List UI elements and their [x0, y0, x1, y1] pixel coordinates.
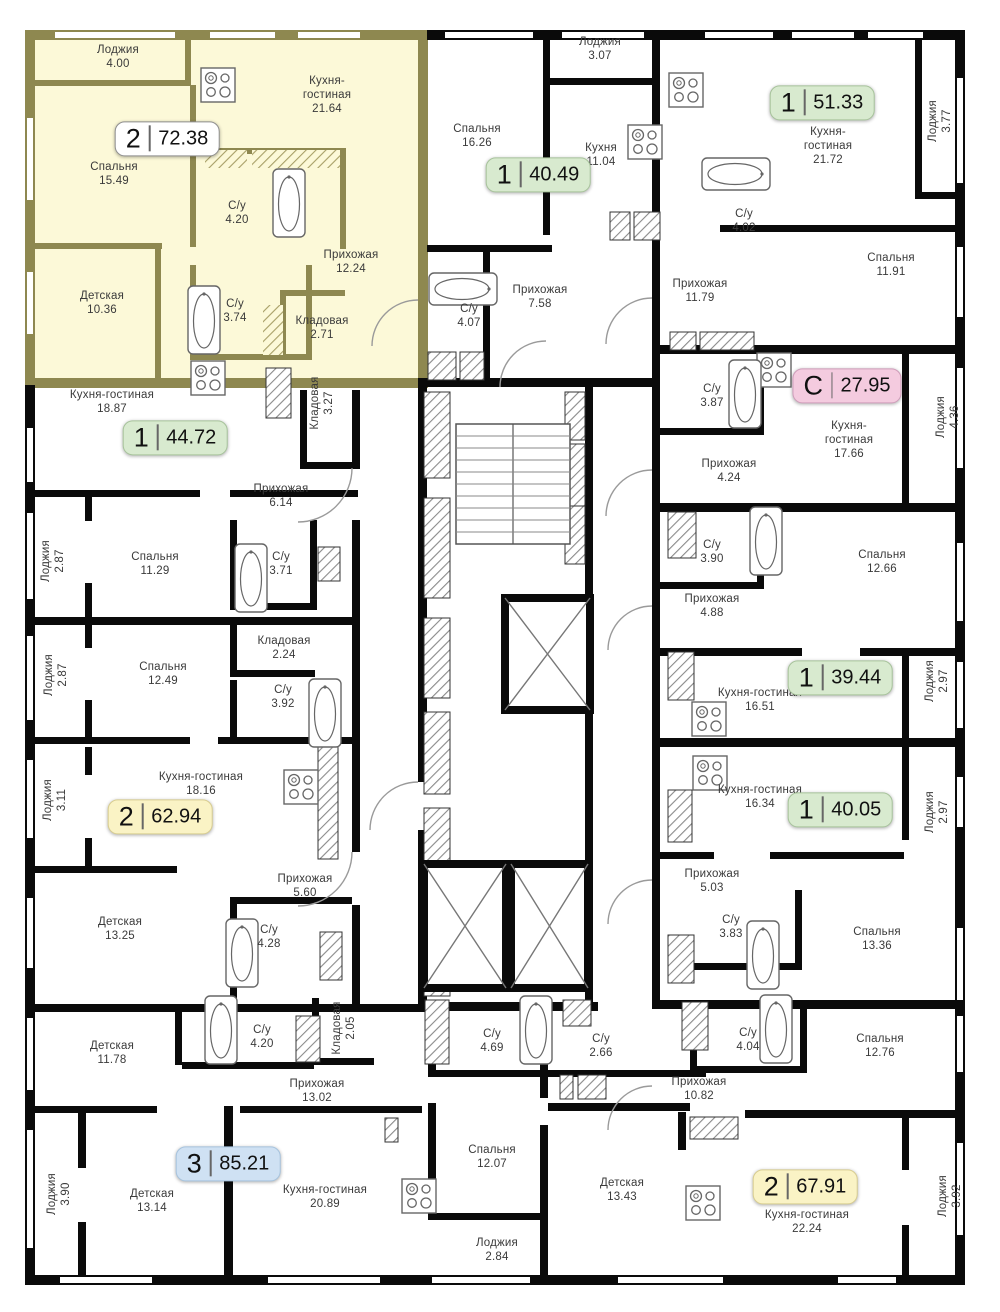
room-name: Кухня-гостиная: [240, 1183, 410, 1197]
room-name: Кладовая: [295, 314, 348, 328]
room-name: С/у: [257, 923, 280, 937]
room-label: Кухня-гостиная18.87: [37, 388, 187, 416]
room-area: 13.43: [600, 1190, 644, 1204]
room-label: Спальня12.76: [856, 1032, 904, 1060]
room-area: 3.92: [271, 697, 294, 711]
room-area: 16.26: [453, 136, 501, 150]
room-area: 12.24: [324, 262, 379, 276]
room-label: Кладовая2.71: [295, 314, 348, 342]
apartment-badge[interactable]: 144.72: [123, 420, 228, 455]
room-area: 3.71: [269, 564, 292, 578]
room-label: Прихожая7.58: [513, 283, 568, 311]
room-label: Прихожая4.88: [685, 592, 740, 620]
room-label: Лоджия4.36: [934, 396, 962, 438]
badge-area: 85.21: [211, 1152, 269, 1175]
room-label: Спальня11.91: [867, 251, 915, 279]
room-area: 11.78: [90, 1053, 134, 1067]
room-name: Лоджия: [579, 35, 621, 49]
room-label: Спальня16.26: [453, 122, 501, 150]
room-area: 5.60: [278, 886, 333, 900]
room-name: С/у: [269, 550, 292, 564]
room-label: Лоджия3.77: [926, 100, 954, 142]
labels-layer: Лоджия4.00Кухня-гостиная21.64Спальня15.4…: [0, 0, 1000, 1312]
room-name: Прихожая: [685, 867, 740, 881]
badge-area: 39.44: [823, 666, 881, 689]
room-label: С/у4.02: [732, 207, 755, 235]
apartment-badge[interactable]: 140.05: [788, 792, 893, 827]
room-area: 21.72: [791, 153, 866, 167]
room-label: Лоджия2.97: [923, 791, 951, 833]
room-label: Спальня15.49: [90, 160, 138, 188]
room-name: Кухня-гостиная: [810, 419, 888, 447]
room-name: С/у: [589, 1032, 612, 1046]
room-label: С/у3.71: [269, 550, 292, 578]
room-area: 4.28: [257, 937, 280, 951]
room-area: 18.87: [37, 402, 187, 416]
room-name: Спальня: [468, 1143, 516, 1157]
room-label: Лоджия2.87: [39, 540, 67, 582]
room-name: С/у: [457, 302, 480, 316]
room-label: Кухня-гостиная20.89: [240, 1183, 410, 1211]
room-area: 3.74: [223, 311, 246, 325]
room-area: 4.24: [702, 471, 757, 485]
room-name: Спальня: [131, 550, 179, 564]
badge-room-count: 1: [799, 663, 822, 691]
room-name: Прихожая: [513, 283, 568, 297]
room-label: Прихожая11.79: [673, 277, 728, 305]
room-area: 2.05: [344, 1001, 358, 1054]
room-label: Прихожая5.03: [685, 867, 740, 895]
room-area: 12.07: [468, 1157, 516, 1171]
badge-room-count: С: [803, 371, 831, 399]
room-label: Лоджия4.00: [97, 43, 139, 71]
floor-plan: Лоджия4.00Кухня-гостиная21.64Спальня15.4…: [0, 0, 1000, 1312]
room-area: 4.20: [225, 213, 248, 227]
room-name: Спальня: [853, 925, 901, 939]
room-label: Прихожая12.24: [324, 248, 379, 276]
room-area: 13.02: [290, 1091, 345, 1105]
room-name: Лоджия: [936, 1175, 950, 1217]
room-area: 4.02: [732, 221, 755, 235]
room-area: 10.82: [672, 1089, 727, 1103]
room-name: С/у: [250, 1023, 273, 1037]
room-label: Прихожая10.82: [672, 1075, 727, 1103]
room-label: Детская10.36: [80, 289, 124, 317]
room-label: Прихожая6.14: [254, 482, 309, 510]
room-name: Прихожая: [702, 457, 757, 471]
room-area: 3.77: [940, 100, 954, 142]
room-name: Спальня: [858, 548, 906, 562]
room-area: 13.14: [130, 1201, 174, 1215]
room-name: Лоджия: [39, 540, 53, 582]
room-name: С/у: [736, 1026, 759, 1040]
room-name: Лоджия: [45, 1173, 59, 1215]
room-label: Детская11.78: [90, 1039, 134, 1067]
badge-room-count: 1: [799, 795, 822, 823]
room-name: Лоджия: [923, 791, 937, 833]
room-area: 7.58: [513, 297, 568, 311]
room-name: Детская: [90, 1039, 134, 1053]
room-name: Прихожая: [278, 872, 333, 886]
room-label: Кладовая2.05: [330, 1001, 358, 1054]
room-name: Лоджия: [934, 396, 948, 438]
room-name: Прихожая: [254, 482, 309, 496]
badge-area: 67.91: [788, 1175, 846, 1198]
room-name: Кухня-гостиная: [116, 770, 286, 784]
room-name: Лоджия: [41, 779, 55, 821]
room-area: 10.36: [80, 303, 124, 317]
room-area: 2.84: [476, 1250, 518, 1264]
room-area: 2.71: [295, 328, 348, 342]
room-label: Лоджия2.87: [42, 654, 70, 696]
room-label: Кухня-гостиная21.64: [292, 74, 362, 116]
room-name: Кухня: [585, 141, 617, 155]
room-name: Прихожая: [290, 1077, 345, 1091]
room-label: Лоджия3.90: [45, 1173, 73, 1215]
apartment-badge[interactable]: 151.33: [770, 85, 875, 120]
room-label: Прихожая4.24: [702, 457, 757, 485]
room-area: 3.90: [59, 1173, 73, 1215]
room-label: С/у4.04: [736, 1026, 759, 1054]
room-area: 11.91: [867, 265, 915, 279]
room-area: 4.88: [685, 606, 740, 620]
room-area: 12.49: [139, 674, 187, 688]
room-name: С/у: [719, 913, 742, 927]
room-label: Спальня12.66: [858, 548, 906, 576]
room-label: С/у3.83: [719, 913, 742, 941]
room-area: 2.87: [56, 654, 70, 696]
room-label: Детская13.14: [130, 1187, 174, 1215]
room-area: 6.14: [254, 496, 309, 510]
room-name: Лоджия: [97, 43, 139, 57]
badge-area: 40.49: [521, 163, 579, 186]
badge-room-count: 1: [497, 160, 520, 188]
room-label: С/у4.20: [250, 1023, 273, 1051]
room-area: 12.66: [858, 562, 906, 576]
room-label: Прихожая5.60: [278, 872, 333, 900]
room-name: Прихожая: [673, 277, 728, 291]
apartment-badge[interactable]: 267.91: [753, 1169, 858, 1204]
room-area: 20.89: [240, 1197, 410, 1211]
badge-room-count: 2: [126, 124, 149, 152]
room-area: 2.97: [937, 660, 951, 702]
room-name: Спальня: [453, 122, 501, 136]
badge-area: 62.94: [143, 805, 201, 828]
room-name: Детская: [130, 1187, 174, 1201]
room-label: Спальня13.36: [853, 925, 901, 953]
badge-area: 72.38: [150, 127, 208, 150]
room-name: Прихожая: [685, 592, 740, 606]
room-name: Спальня: [867, 251, 915, 265]
room-area: 17.66: [810, 447, 888, 461]
room-area: 13.25: [98, 929, 142, 943]
apartment-badge[interactable]: 140.49: [486, 157, 591, 192]
room-name: Кухня-гостиная: [37, 388, 187, 402]
room-label: С/у4.20: [225, 199, 248, 227]
room-area: 16.51: [718, 700, 803, 714]
room-label: С/у2.66: [589, 1032, 612, 1060]
room-name: Прихожая: [672, 1075, 727, 1089]
apartment-badge[interactable]: 385.21: [176, 1146, 281, 1181]
room-name: Лоджия: [42, 654, 56, 696]
badge-area: 44.72: [158, 426, 216, 449]
room-area: 18.16: [116, 784, 286, 798]
room-name: С/у: [480, 1027, 503, 1041]
room-name: Кухня-гостиная: [722, 1208, 892, 1222]
room-area: 21.64: [292, 102, 362, 116]
room-label: Кладовая2.24: [257, 634, 310, 662]
room-label: С/у3.74: [223, 297, 246, 325]
room-name: Лоджия: [923, 660, 937, 702]
room-label: Лоджия3.92: [936, 1175, 964, 1217]
room-name: Детская: [80, 289, 124, 303]
room-label: Детская13.43: [600, 1176, 644, 1204]
room-area: 3.92: [950, 1175, 964, 1217]
room-name: Спальня: [856, 1032, 904, 1046]
room-area: 3.07: [579, 49, 621, 63]
room-area: 2.87: [53, 540, 67, 582]
room-name: Кладовая: [308, 376, 322, 429]
room-name: Кухня-гостиная: [292, 74, 362, 102]
room-label: Детская13.25: [98, 915, 142, 943]
badge-room-count: 3: [187, 1149, 210, 1177]
room-area: 22.24: [722, 1222, 892, 1236]
room-label: С/у3.87: [700, 382, 723, 410]
room-label: Кухня-гостиная18.16: [116, 770, 286, 798]
room-area: 4.07: [457, 316, 480, 330]
room-label: Прихожая13.02: [290, 1077, 345, 1105]
badge-room-count: 1: [781, 88, 804, 116]
room-area: 2.97: [937, 791, 951, 833]
room-name: Детская: [98, 915, 142, 929]
apartment-badge[interactable]: 262.94: [108, 799, 213, 834]
room-area: 3.83: [719, 927, 742, 941]
room-name: Кладовая: [257, 634, 310, 648]
room-label: Кладовая3.27: [308, 376, 336, 429]
room-area: 13.36: [853, 939, 901, 953]
room-label: Лоджия2.84: [476, 1236, 518, 1264]
badge-area: 51.33: [805, 91, 863, 114]
room-label: Лоджия3.11: [41, 779, 69, 821]
room-area: 4.69: [480, 1041, 503, 1055]
room-area: 4.00: [97, 57, 139, 71]
room-label: Кухня-гостиная22.24: [722, 1208, 892, 1236]
room-name: С/у: [700, 382, 723, 396]
room-area: 3.87: [700, 396, 723, 410]
room-area: 15.49: [90, 174, 138, 188]
room-name: С/у: [271, 683, 294, 697]
room-name: Кладовая: [330, 1001, 344, 1054]
room-area: 4.04: [736, 1040, 759, 1054]
room-area: 5.03: [685, 881, 740, 895]
room-name: Кухня-гостиная: [791, 125, 866, 153]
room-area: 4.36: [948, 396, 962, 438]
apartment-badge[interactable]: 272.38: [115, 121, 220, 156]
room-name: С/у: [223, 297, 246, 311]
room-area: 3.11: [55, 779, 69, 821]
room-label: С/у4.07: [457, 302, 480, 330]
room-name: С/у: [700, 538, 723, 552]
room-label: Лоджия3.07: [579, 35, 621, 63]
room-label: Спальня11.29: [131, 550, 179, 578]
badge-room-count: 2: [119, 802, 142, 830]
room-name: С/у: [732, 207, 755, 221]
apartment-badge[interactable]: 139.44: [788, 660, 893, 695]
room-area: 4.20: [250, 1037, 273, 1051]
badge-area: 27.95: [832, 374, 890, 397]
badge-area: 40.05: [823, 798, 881, 821]
badge-room-count: 2: [764, 1172, 787, 1200]
room-label: С/у3.92: [271, 683, 294, 711]
badge-room-count: 1: [134, 423, 157, 451]
room-name: Лоджия: [476, 1236, 518, 1250]
room-name: С/у: [225, 199, 248, 213]
room-name: Детская: [600, 1176, 644, 1190]
room-name: Лоджия: [926, 100, 940, 142]
room-area: 11.79: [673, 291, 728, 305]
room-label: Кухня-гостиная21.72: [791, 125, 866, 167]
room-label: Кухня-гостиная17.66: [810, 419, 888, 461]
room-area: 11.29: [131, 564, 179, 578]
room-label: С/у4.28: [257, 923, 280, 951]
room-label: Спальня12.49: [139, 660, 187, 688]
room-label: Лоджия2.97: [923, 660, 951, 702]
apartment-badge[interactable]: С27.95: [792, 368, 901, 403]
room-name: Спальня: [139, 660, 187, 674]
room-label: Спальня12.07: [468, 1143, 516, 1171]
room-label: С/у3.90: [700, 538, 723, 566]
room-name: Спальня: [90, 160, 138, 174]
room-area: 2.66: [589, 1046, 612, 1060]
room-label: С/у4.69: [480, 1027, 503, 1055]
room-area: 3.90: [700, 552, 723, 566]
room-area: 3.27: [322, 376, 336, 429]
room-name: Прихожая: [324, 248, 379, 262]
room-area: 12.76: [856, 1046, 904, 1060]
room-area: 2.24: [257, 648, 310, 662]
